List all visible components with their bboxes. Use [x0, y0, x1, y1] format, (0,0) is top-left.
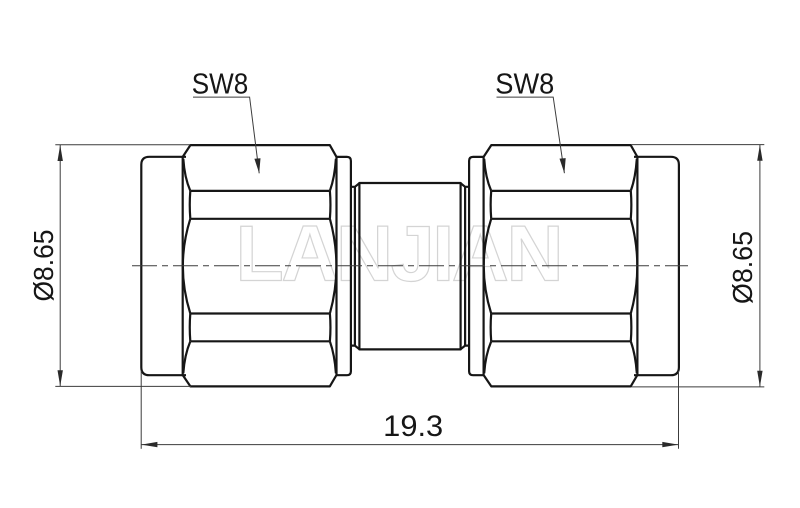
svg-text:SW8: SW8 [192, 68, 249, 100]
svg-text:LANJIAN: LANJIAN [236, 208, 562, 297]
svg-text:SW8: SW8 [495, 68, 554, 100]
svg-text:Ø8.65: Ø8.65 [28, 230, 59, 302]
svg-text:19.3: 19.3 [383, 410, 443, 443]
svg-text:Ø8.65: Ø8.65 [727, 231, 758, 304]
